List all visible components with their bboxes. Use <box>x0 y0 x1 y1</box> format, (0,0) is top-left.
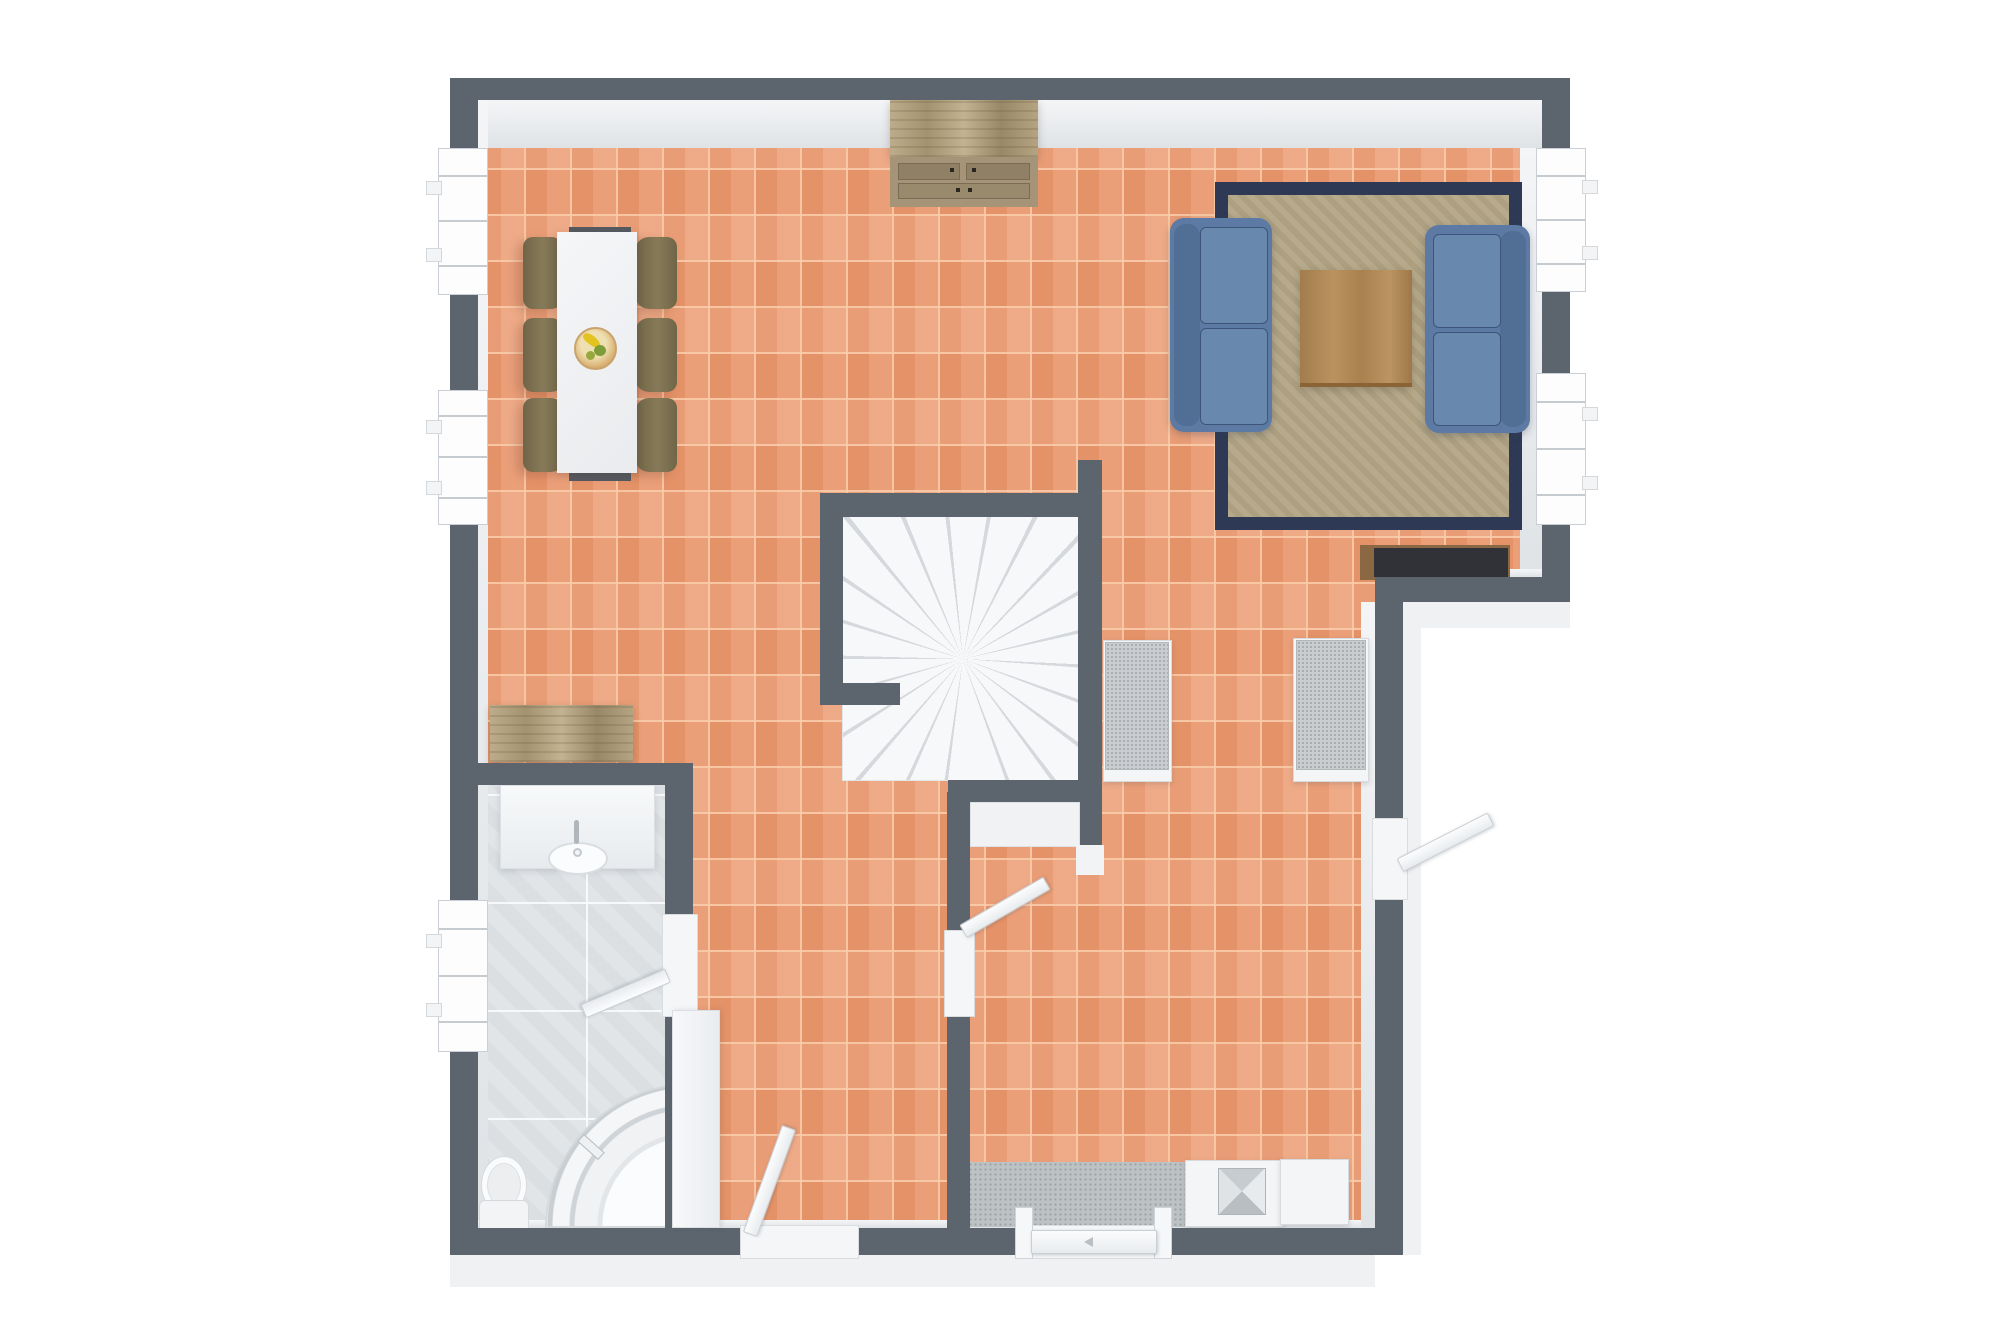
green-fruit-icon <box>594 345 606 356</box>
drawer-handle-icon <box>950 168 954 172</box>
wall-bathroom-top <box>450 763 673 785</box>
wall-exterior-right-lower <box>1375 577 1403 1255</box>
staircase-treads[interactable] <box>843 517 1078 780</box>
sideboard-drawer <box>898 183 1030 199</box>
window-right-upper[interactable] <box>1536 148 1586 292</box>
bench-cushion <box>1296 640 1366 770</box>
wall-stair-top <box>820 493 1080 517</box>
wall-stair-right <box>1078 460 1102 845</box>
window-sill-icon <box>426 934 442 948</box>
wall-exterior-top <box>450 78 1570 100</box>
window-sill-icon <box>426 420 442 434</box>
hall-bench-left[interactable] <box>1103 640 1172 782</box>
wall-bedroom-hall-lower <box>947 1012 970 1228</box>
wardrobe[interactable] <box>672 1010 720 1228</box>
window-left-upper[interactable] <box>438 148 488 295</box>
vanity-basin <box>548 842 608 875</box>
tv-console-dark-top <box>1374 548 1508 577</box>
sideboard-front <box>890 157 1038 207</box>
exterior-area <box>1403 602 1542 1228</box>
drawer-handle-icon <box>968 188 972 192</box>
toilet[interactable] <box>478 1156 530 1236</box>
dining-chair[interactable] <box>635 318 677 392</box>
window-sill-icon <box>1582 407 1598 421</box>
sofa-seat-cushion <box>1433 234 1501 328</box>
stair-wall-end-sill <box>1076 845 1104 875</box>
sofa-back-cushion <box>1174 224 1200 426</box>
coffee-table[interactable] <box>1300 270 1412 387</box>
hall-bench-right[interactable] <box>1293 638 1369 782</box>
window-left-mid[interactable] <box>438 390 488 525</box>
wall-exterior-bottom <box>450 1228 1375 1255</box>
drawer-handle-icon <box>956 188 960 192</box>
door-threshold <box>944 930 975 1017</box>
window-sill-icon <box>1582 180 1598 194</box>
dining-chair[interactable] <box>635 237 677 309</box>
sofa-right[interactable] <box>1425 225 1530 433</box>
console-bench[interactable] <box>490 705 633 762</box>
sofa-seat-cushion <box>1200 328 1268 425</box>
bench-cushion <box>1105 642 1169 770</box>
entry-cabinet-1[interactable] <box>1185 1160 1284 1227</box>
door-main-entrance[interactable] <box>1031 1230 1157 1254</box>
doormat[interactable] <box>968 1162 1185 1227</box>
floor-plan-canvas <box>0 0 2000 1333</box>
stair-landing <box>970 802 1080 847</box>
window-sill-icon <box>426 248 442 262</box>
window-bathroom[interactable] <box>438 900 488 1052</box>
door-threshold <box>662 914 698 1017</box>
fruit-bowl[interactable] <box>574 327 617 370</box>
wall-stair-left <box>820 493 843 705</box>
window-right-mid[interactable] <box>1536 373 1586 525</box>
wall-stair-stub <box>820 683 900 705</box>
entry-cabinet-2[interactable] <box>1280 1159 1349 1225</box>
window-sill-icon <box>1582 246 1598 260</box>
wall-outer-face-bottom <box>450 1255 1375 1287</box>
wall-living-bottom <box>1375 577 1570 602</box>
sideboard-top[interactable] <box>890 100 1038 157</box>
faucet-drain-icon <box>573 848 582 857</box>
sofa-back-cushion <box>1500 231 1526 427</box>
wall-bedroom-hall-upper <box>947 792 970 935</box>
faucet-icon <box>574 820 579 844</box>
wall-outer-face-right-lower <box>1403 602 1421 1255</box>
sofa-seat-cushion <box>1433 332 1501 426</box>
sofa-left[interactable] <box>1170 218 1272 432</box>
wall-bathroom-right-upper <box>665 763 693 917</box>
window-sill-icon <box>1582 476 1598 490</box>
window-sill-icon <box>426 1003 442 1017</box>
sofa-seat-cushion <box>1200 227 1268 324</box>
drawer-handle-icon <box>972 168 976 172</box>
wall-outer-face-living-bottom <box>1403 602 1570 628</box>
green-fruit-icon <box>586 351 595 360</box>
window-sill-icon <box>426 181 442 195</box>
tv-console[interactable] <box>1360 545 1510 580</box>
window-sill-icon <box>426 481 442 495</box>
door-swing-arrow-icon <box>1084 1237 1093 1247</box>
metal-tray-icon <box>1218 1168 1266 1215</box>
dining-chair[interactable] <box>635 398 677 472</box>
